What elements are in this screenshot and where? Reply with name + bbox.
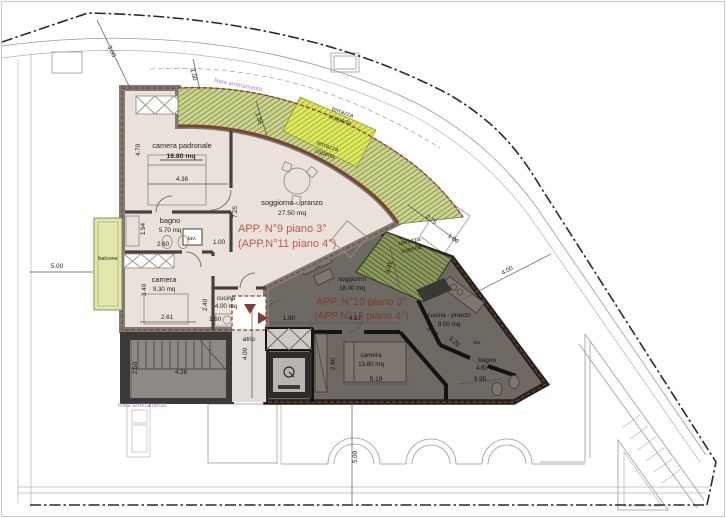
toilet — [492, 383, 502, 396]
dim: 4.36 — [176, 176, 189, 183]
dim: 4.00 — [242, 347, 249, 360]
dim: 7.25 — [232, 205, 239, 218]
room-label: bagno — [160, 216, 181, 225]
room-label: camera — [152, 275, 178, 284]
dim: 5.19 — [370, 376, 383, 383]
room-area: 4.60 mq — [476, 365, 499, 372]
room-label: soggiorno - pranzo — [261, 198, 323, 207]
room-label: bagno — [478, 357, 496, 364]
dim: 4.70 — [135, 143, 142, 156]
dim: 4.17 — [349, 315, 362, 322]
dim: 2.40 — [202, 298, 209, 311]
room-label: cucina — [217, 295, 236, 302]
atrio-label: atrio — [243, 336, 256, 343]
floor-plan-canvas: camera padronale 16.80 mq 4.36 4.70 bagn… — [0, 0, 726, 518]
room-area: 9.30 mq — [153, 286, 176, 293]
shaft — [266, 328, 312, 350]
elevator-door — [278, 385, 300, 389]
setback-label-bottom: linea arretramento — [118, 403, 167, 409]
app10-title-line1: APP. N°10 piano 3° — [316, 296, 407, 308]
room-area: 9.00 mq — [438, 321, 461, 328]
lav-label: lav — [473, 340, 480, 346]
dim: 1.60 — [209, 316, 222, 323]
room-area: 13.80 mq — [358, 361, 384, 368]
bidet — [509, 376, 519, 389]
room-label: camera — [360, 352, 382, 359]
dim: 3.95 — [474, 376, 487, 383]
dim: 2.50 — [132, 361, 139, 374]
room-area: 16.80 mq — [166, 153, 195, 160]
room-label: camera padronale — [152, 141, 212, 150]
app10-title-line2: (APP.N°12 piano 4°) — [314, 310, 409, 322]
entry-recess — [232, 296, 266, 330]
dim: 5.00 — [352, 450, 359, 463]
balcone — [94, 218, 122, 310]
app9-title-line1: APP. N°9 piano 3° — [238, 223, 327, 235]
lav-label: lav. — [188, 236, 197, 242]
dim: 2.61 — [161, 314, 174, 321]
dim: 1.80 — [283, 315, 296, 322]
dim: 2.90 — [330, 357, 337, 370]
room-label: cucina - pranzo — [427, 312, 471, 319]
room-area: 27.50 mq — [278, 210, 307, 217]
room-area: 5.70 mq — [159, 227, 182, 234]
app9-title-line2: (APP.N°11 piano 4°) — [238, 238, 336, 250]
dim: 2.60 — [157, 241, 170, 248]
floor-plan-drawing: camera padronale 16.80 mq 4.36 4.70 bagn… — [0, 0, 726, 518]
dim: 5.00 — [51, 263, 64, 270]
dim: 4.36 — [175, 369, 188, 376]
room-area: 4.00 mq — [215, 303, 238, 310]
room-label: soggiorno — [338, 276, 367, 283]
room-area: 18.00 mq — [339, 285, 365, 292]
dim: 1.94 — [140, 222, 147, 235]
dim: 1.00 — [213, 239, 226, 246]
dim: 3.40 — [141, 283, 148, 296]
balcone-label: balcone — [98, 256, 118, 262]
